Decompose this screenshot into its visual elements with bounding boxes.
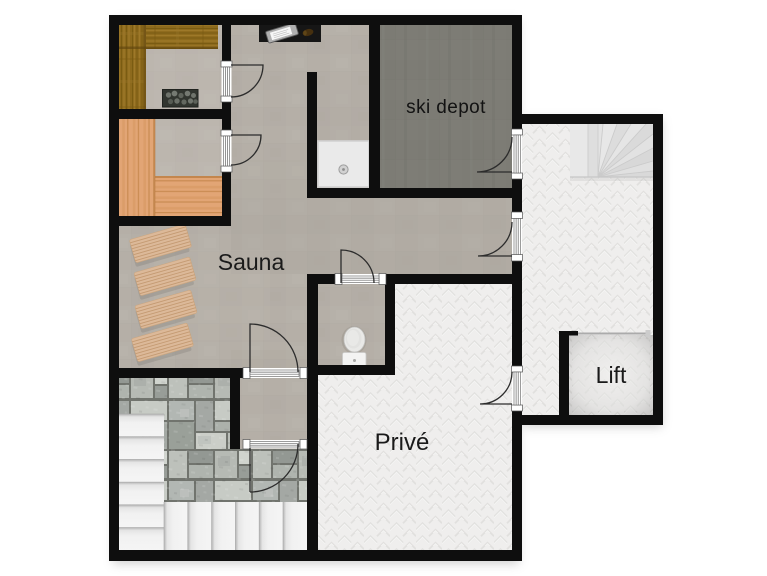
svg-text:ski depot: ski depot <box>406 97 486 118</box>
svg-text:Sauna: Sauna <box>218 249 285 275</box>
svg-text:Lift: Lift <box>596 362 627 388</box>
svg-text:Privé: Privé <box>375 429 430 456</box>
